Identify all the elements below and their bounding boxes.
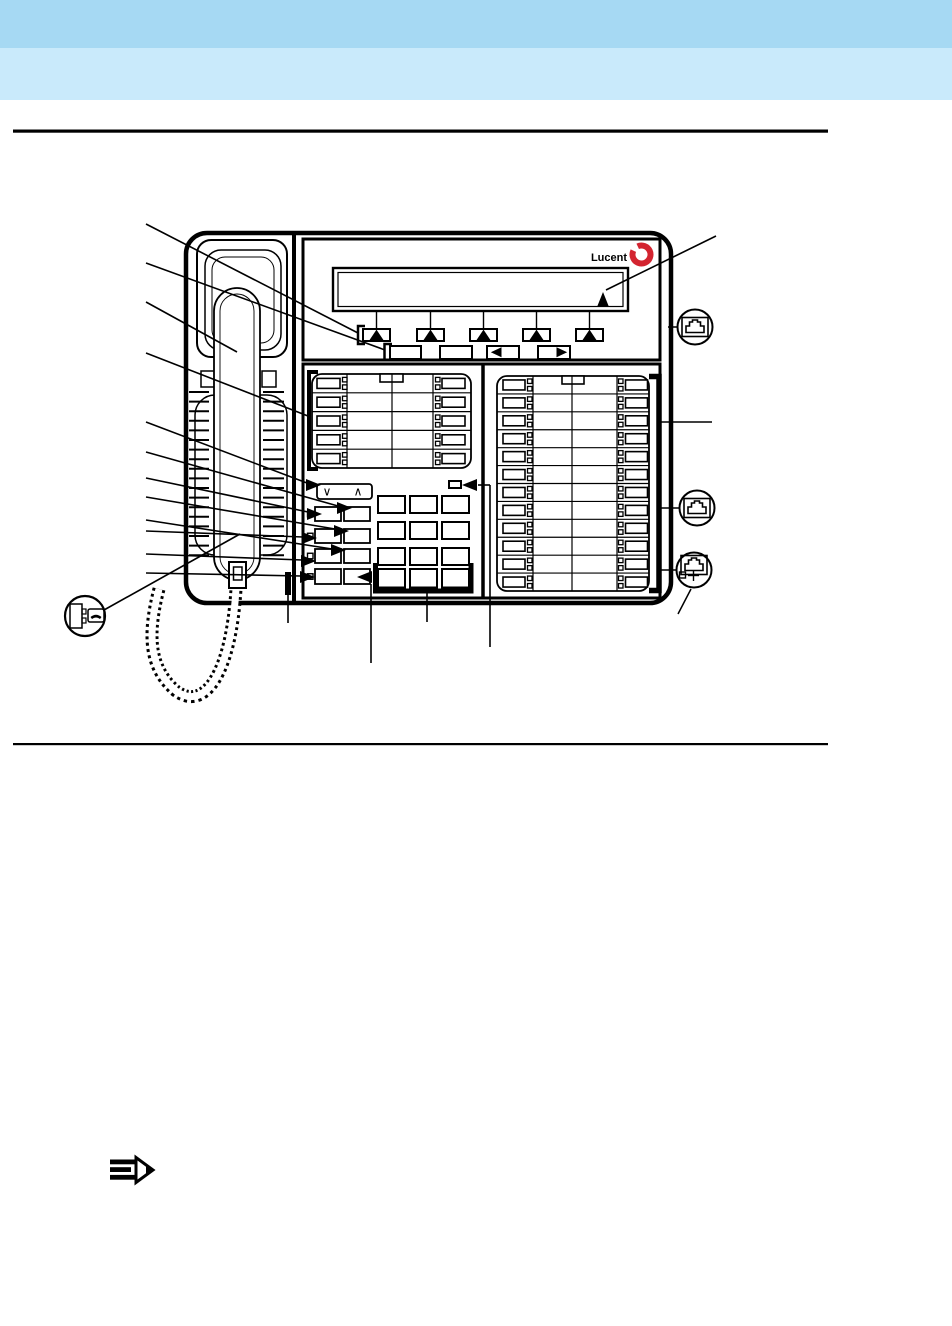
- led-indicator: [619, 458, 624, 463]
- line-button: [626, 470, 648, 480]
- led-indicator: [436, 404, 441, 409]
- led-indicator: [528, 512, 533, 517]
- line-button: [626, 380, 648, 390]
- line-button: [626, 452, 648, 462]
- phone-diagram: Lucent ∨ ∧: [152, 233, 671, 697]
- led-indicator: [619, 522, 624, 527]
- led-indicator: [619, 476, 624, 481]
- dialpad-key: [410, 569, 437, 588]
- line-button: [503, 434, 525, 444]
- line-button: [442, 378, 465, 388]
- led-indicator: [619, 530, 624, 535]
- led-indicator: [619, 566, 624, 571]
- line-button: [503, 452, 525, 462]
- line-button: [626, 487, 648, 497]
- line-button: [626, 416, 648, 426]
- led-indicator: [619, 494, 624, 499]
- dialpad-key: [378, 548, 405, 565]
- led-indicator: [528, 433, 533, 438]
- led-indicator: [619, 451, 624, 456]
- dialpad-key: [378, 522, 405, 539]
- led-indicator: [528, 522, 533, 527]
- dialpad-key: [442, 496, 469, 513]
- led-indicator: [528, 494, 533, 499]
- pencil-bar: [110, 1175, 136, 1180]
- led-indicator: [619, 379, 624, 384]
- line-button: [503, 398, 525, 408]
- led-indicator: [436, 385, 441, 390]
- line-button: [442, 397, 465, 407]
- pencil-bar: [110, 1167, 131, 1172]
- led-indicator: [343, 404, 348, 409]
- led-indicator: [619, 404, 624, 409]
- pencil-bar: [110, 1160, 136, 1165]
- volume-down-symbol: ∨: [323, 485, 332, 499]
- led-indicator: [619, 558, 624, 563]
- led-indicator: [528, 540, 533, 545]
- led-indicator: [528, 451, 533, 456]
- manual-page-figure: Lucent ∨ ∧: [0, 0, 952, 1326]
- line-button: [503, 523, 525, 533]
- led-indicator: [436, 396, 441, 401]
- led-indicator: [528, 440, 533, 445]
- led-indicator: [528, 486, 533, 491]
- line-jack-icon: [682, 318, 708, 337]
- led-indicator: [619, 397, 624, 402]
- line-button: [442, 454, 465, 464]
- nav-button: [440, 346, 472, 359]
- bottom-rule: [13, 743, 828, 745]
- led-indicator: [528, 386, 533, 391]
- brand-logo-text: Lucent: [591, 252, 627, 264]
- led-indicator: [436, 460, 441, 465]
- line-button: [503, 541, 525, 551]
- led-indicator: [528, 584, 533, 589]
- line-button: [503, 577, 525, 587]
- led-indicator: [619, 540, 624, 545]
- led-indicator: [619, 422, 624, 427]
- handset-jack-icon: [684, 499, 710, 518]
- line-button: [626, 541, 648, 551]
- dialpad-key: [442, 548, 469, 565]
- led-indicator: [528, 397, 533, 402]
- fixed-feature-button: [344, 549, 370, 563]
- line-button: [317, 454, 340, 464]
- led-indicator: [619, 415, 624, 420]
- led-indicator: [343, 434, 348, 439]
- led-indicator: [343, 415, 348, 420]
- cord-jack-icon: [70, 604, 82, 628]
- volume-up-symbol: ∧: [354, 485, 363, 499]
- line-button: [442, 416, 465, 426]
- led-indicator: [436, 423, 441, 428]
- adjunct-callout-line: [678, 589, 691, 614]
- dialpad-key: [410, 496, 437, 513]
- led-indicator: [619, 512, 624, 517]
- fixed-feature-button: [315, 569, 341, 584]
- line-button: [626, 505, 648, 515]
- designation-card-tab: [562, 376, 584, 384]
- cradle-tab-right: [262, 371, 276, 387]
- led-indicator: [343, 396, 348, 401]
- line-button: [503, 416, 525, 426]
- led-indicator: [343, 441, 348, 446]
- led-indicator: [343, 460, 348, 465]
- line-button: [503, 487, 525, 497]
- led-indicator: [619, 469, 624, 474]
- line-button: [626, 577, 648, 587]
- led-indicator: [343, 453, 348, 458]
- led-indicator: [436, 434, 441, 439]
- led-indicator: [343, 423, 348, 428]
- led-indicator: [528, 566, 533, 571]
- nav-button: [390, 346, 421, 359]
- dialpad-key: [442, 569, 469, 588]
- led-indicator: [528, 576, 533, 581]
- line-button: [503, 470, 525, 480]
- led-indicator: [619, 584, 624, 589]
- led-indicator: [619, 486, 624, 491]
- line-button: [626, 434, 648, 444]
- led-indicator: [528, 548, 533, 553]
- dialpad-key: [378, 569, 405, 588]
- led-indicator: [528, 530, 533, 535]
- dialpad-key: [442, 522, 469, 539]
- top-rule: [13, 130, 828, 133]
- line-button: [317, 416, 340, 426]
- line-button: [317, 397, 340, 407]
- led-indicator: [436, 441, 441, 446]
- dialpad-key: [378, 496, 405, 513]
- led-indicator: [528, 379, 533, 384]
- line-button: [503, 380, 525, 390]
- led-indicator: [619, 576, 624, 581]
- cord-jack-notch-icon: [82, 618, 86, 623]
- led-indicator: [528, 469, 533, 474]
- note-pencil-icon: [110, 1158, 153, 1183]
- led-indicator: [343, 385, 348, 390]
- led-indicator: [528, 476, 533, 481]
- led-indicator: [528, 504, 533, 509]
- right-line-button-field: [497, 376, 649, 591]
- left-line-button-field: [312, 374, 471, 468]
- line-button: [317, 435, 340, 445]
- led-indicator: [619, 548, 624, 553]
- led-indicator: [619, 440, 624, 445]
- led-indicator: [528, 422, 533, 427]
- led-indicator: [619, 386, 624, 391]
- line-button: [503, 505, 525, 515]
- led-indicator: [528, 458, 533, 463]
- led-indicator: [436, 415, 441, 420]
- dialpad-key: [410, 522, 437, 539]
- led-indicator: [308, 553, 314, 559]
- line-button: [626, 523, 648, 533]
- line-button: [442, 435, 465, 445]
- dialpad-key: [410, 548, 437, 565]
- header-band-bottom: [0, 48, 952, 100]
- cord-jack-notch-icon: [82, 609, 86, 614]
- line-button: [626, 559, 648, 569]
- header-band-top: [0, 0, 952, 48]
- handset-glyph-icon: [91, 615, 102, 619]
- line-button: [503, 559, 525, 569]
- line-button: [626, 398, 648, 408]
- led-indicator: [528, 415, 533, 420]
- led-indicator: [436, 377, 441, 382]
- led-indicator: [343, 377, 348, 382]
- led-indicator: [528, 558, 533, 563]
- led-indicator: [619, 433, 624, 438]
- led-indicator: [619, 504, 624, 509]
- line-button: [317, 378, 340, 388]
- led-indicator: [528, 404, 533, 409]
- led-indicator: [436, 453, 441, 458]
